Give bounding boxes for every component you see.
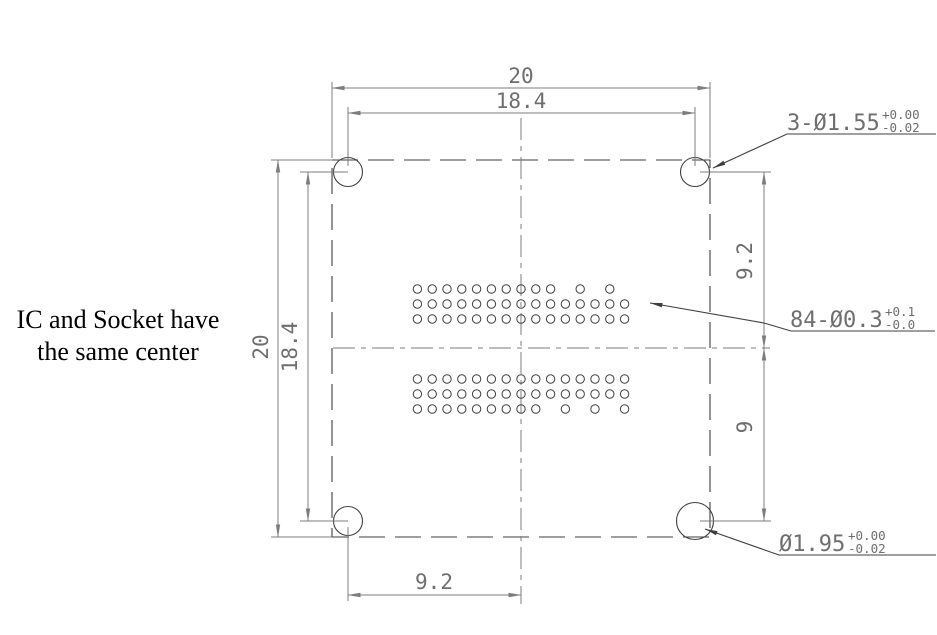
pin-hole [413,375,421,383]
pin-hole [606,390,614,398]
pin-hole [472,405,480,413]
pin-hole [561,405,569,413]
callout-corner-holes-tol-minus: -0.02 [882,120,920,135]
pin-hole [413,315,421,323]
dim-text-top-hole-spacing: 18.4 [496,89,547,113]
pin-hole [413,405,421,413]
pin-hole [606,375,614,383]
pin-hole [487,405,495,413]
pin-hole [443,375,451,383]
pin-hole [413,300,421,308]
pin-hole [487,375,495,383]
pin-hole [443,315,451,323]
pin-hole [443,390,451,398]
pin-hole [472,375,480,383]
dim-text-right-upper: 9.2 [733,242,757,280]
pin-hole [502,390,510,398]
pin-hole [576,375,584,383]
pin-hole [502,315,510,323]
pin-hole [428,300,436,308]
pin-hole [576,390,584,398]
pin-hole [502,285,510,293]
pin-hole [546,285,554,293]
pin-hole [532,285,540,293]
pin-hole [428,405,436,413]
pin-hole [532,300,540,308]
callout-pin1-hole: Ø1.95 [779,532,845,557]
pin-hole [561,315,569,323]
pin-hole [472,285,480,293]
pin-hole [458,285,466,293]
pin-hole [591,375,599,383]
pin-hole [532,390,540,398]
dim-text-right-lower: 9 [733,421,757,434]
pin-hole [487,300,495,308]
pin-hole [606,300,614,308]
dim-text-top-overall: 20 [508,64,533,88]
pin-hole [443,300,451,308]
technical-drawing-page: 20 18.4 20 18.4 9.2 9 9.2 3-Ø1.55 +0.00 … [0,0,937,635]
callout-pin-holes: 84-Ø0.3 [790,308,883,333]
pin-hole [620,300,628,308]
pin-hole [472,315,480,323]
pin-hole [576,315,584,323]
note-line2: the same center [37,337,199,366]
pin-hole [487,315,495,323]
pin-hole [606,315,614,323]
pin-hole [502,300,510,308]
dim-text-left-overall: 20 [249,334,273,359]
callout-pin-holes-tol-minus: -0.0 [885,317,915,332]
pin-hole [458,405,466,413]
pin-hole [576,285,584,293]
pin-hole [487,285,495,293]
pin-hole [561,375,569,383]
pin-hole [428,315,436,323]
pin-hole [546,390,554,398]
pin-hole [472,300,480,308]
pin-hole [561,300,569,308]
pin-hole [502,405,510,413]
pin-hole [428,285,436,293]
drawing-svg: 20 18.4 20 18.4 9.2 9 9.2 3-Ø1.55 +0.00 … [0,0,937,635]
pin-hole [428,390,436,398]
pin-hole [620,315,628,323]
dim-text-left-hole-spacing: 18.4 [278,322,302,373]
note-line1: IC and Socket have [17,305,220,334]
pin-hole [591,300,599,308]
pin-hole [532,375,540,383]
pin-hole [591,315,599,323]
pin-hole [606,285,614,293]
pin-hole [458,300,466,308]
pin-hole [458,390,466,398]
pin-hole [502,375,510,383]
pin-hole [546,300,554,308]
pin-hole [532,405,540,413]
pin-hole [576,300,584,308]
dim-text-bottom-half: 9.2 [415,570,453,594]
callout-pin1-hole-tol-minus: -0.02 [848,541,886,556]
pin-hole [591,390,599,398]
pin-hole [620,405,628,413]
pin-hole [546,315,554,323]
pin-hole [458,375,466,383]
pin-hole [458,315,466,323]
pin-hole [620,375,628,383]
pin-hole [472,390,480,398]
pin-hole [428,375,436,383]
pin-hole [443,405,451,413]
pin-hole [561,390,569,398]
pin-hole [591,405,599,413]
callout-corner-holes: 3-Ø1.55 [787,111,880,136]
pin-hole [443,285,451,293]
pin-hole [620,390,628,398]
pin-hole [487,390,495,398]
pin-hole [546,375,554,383]
leader-corner-holes [713,134,936,168]
pin-hole [413,285,421,293]
pin-hole [532,315,540,323]
pin-hole [413,390,421,398]
